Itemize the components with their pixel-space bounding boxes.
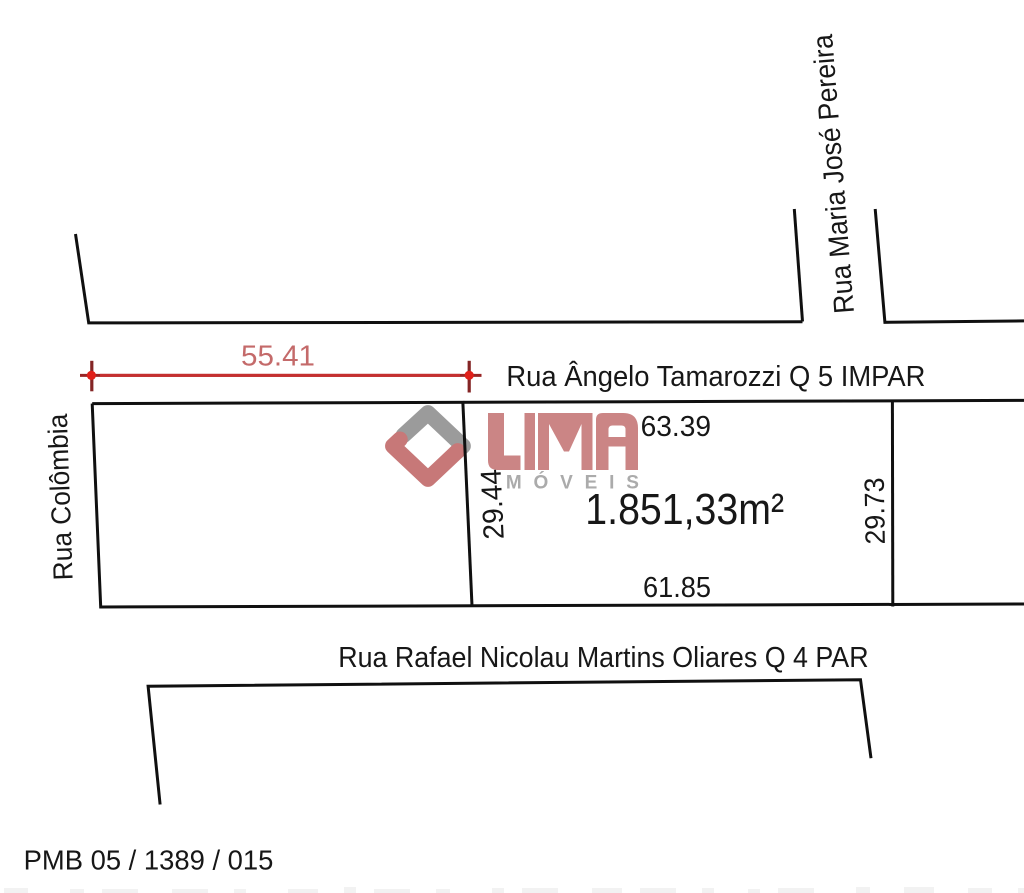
svg-text:Rua Rafael Nicolau Martins Oli: Rua Rafael Nicolau Martins Oliares Q 4 P… [338,642,868,674]
svg-text:29.73: 29.73 [859,477,891,545]
svg-text:Rua Maria José Pereira: Rua Maria José Pereira [807,33,861,315]
svg-text:Rua Ângelo Tamarozzi Q 5 IMPAR: Rua Ângelo Tamarozzi Q 5 IMPAR [506,360,925,393]
svg-text:63.39: 63.39 [641,411,711,443]
svg-text:61.85: 61.85 [643,572,711,604]
svg-text:Rua Colômbia: Rua Colômbia [42,413,79,581]
svg-text:29.44: 29.44 [476,468,511,540]
svg-text:55.41: 55.41 [241,340,315,372]
svg-text:PMB 05 / 1389 / 015: PMB 05 / 1389 / 015 [24,844,274,875]
svg-text:1.851,33m²: 1.851,33m² [585,485,784,534]
